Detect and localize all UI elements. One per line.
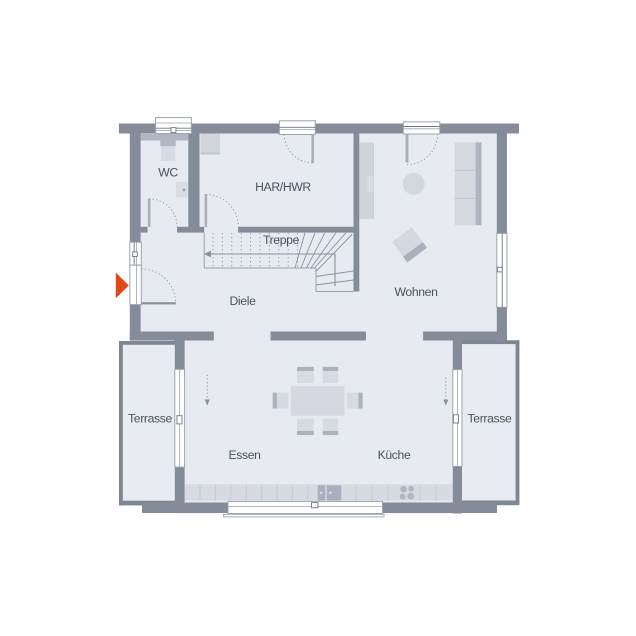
svg-text:Küche: Küche	[378, 448, 411, 462]
svg-text:WC: WC	[158, 166, 178, 180]
svg-text:Essen: Essen	[228, 448, 260, 462]
svg-text:HAR/HWR: HAR/HWR	[255, 180, 311, 194]
svg-text:Diele: Diele	[229, 294, 256, 308]
svg-text:Terrasse: Terrasse	[128, 412, 173, 426]
svg-text:Terrasse: Terrasse	[468, 412, 513, 426]
svg-text:Wohnen: Wohnen	[394, 285, 437, 299]
svg-text:Treppe: Treppe	[263, 233, 300, 247]
